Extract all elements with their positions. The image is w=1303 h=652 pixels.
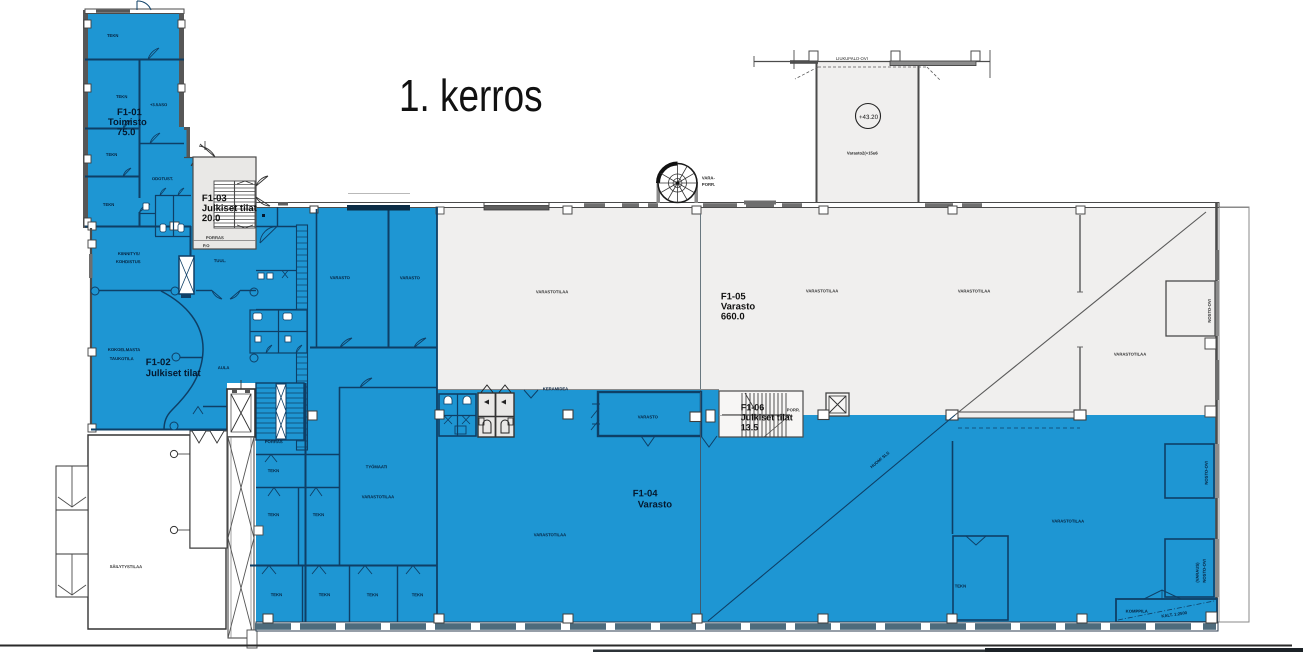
- svg-text:F1-04: F1-04: [633, 488, 659, 499]
- svg-text:LIUKUPALO-OVI: LIUKUPALO-OVI: [836, 56, 868, 61]
- svg-text:TEKN: TEKN: [268, 468, 279, 473]
- svg-text:VARASTO: VARASTO: [400, 275, 421, 280]
- svg-text:F1-02: F1-02: [146, 357, 171, 368]
- svg-text:+3.5ASO: +3.5ASO: [150, 102, 168, 107]
- svg-text:VARASTOTILAA: VARASTOTILAA: [536, 289, 568, 294]
- svg-text:VARASTOTILAA: VARASTOTILAA: [1052, 519, 1084, 524]
- svg-text:TEKN: TEKN: [103, 202, 114, 207]
- svg-text:(VARAUS): (VARAUS): [1195, 562, 1200, 583]
- svg-text:PORR.: PORR.: [702, 182, 715, 187]
- svg-text:P.O: P.O: [203, 243, 210, 248]
- svg-text:TEKN: TEKN: [268, 512, 279, 517]
- svg-text:Varasto2(+15u6: Varasto2(+15u6: [847, 150, 879, 155]
- svg-text:TEKN: TEKN: [116, 94, 127, 99]
- svg-text:KOMPPILA: KOMPPILA: [1126, 609, 1148, 614]
- svg-text:TEKN: TEKN: [412, 592, 423, 597]
- svg-text:13.5: 13.5: [741, 422, 759, 432]
- svg-text:TEKN: TEKN: [367, 592, 378, 597]
- svg-text:KERAMIDEA: KERAMIDEA: [543, 386, 568, 391]
- svg-text:TEKN: TEKN: [106, 152, 117, 157]
- svg-text:VARASTOTILAA: VARASTOTILAA: [1114, 352, 1146, 357]
- svg-text:660.0: 660.0: [721, 311, 745, 322]
- svg-text:F1-06: F1-06: [741, 402, 765, 412]
- svg-text:75.0: 75.0: [117, 127, 136, 138]
- svg-text:NOSTO-OVI: NOSTO-OVI: [1207, 299, 1212, 322]
- svg-text:NOSTO-OVI: NOSTO-OVI: [1204, 461, 1209, 484]
- svg-text:1. kerros: 1. kerros: [399, 70, 543, 121]
- svg-text:KOKOELMASTA: KOKOELMASTA: [108, 347, 141, 352]
- svg-text:TUUL.: TUUL.: [214, 258, 226, 263]
- svg-text:TAUKOTILA: TAUKOTILA: [110, 356, 134, 361]
- svg-text:VARASTOTILAA: VARASTOTILAA: [958, 289, 990, 294]
- svg-text:Julkiset tilat: Julkiset tilat: [741, 412, 793, 422]
- svg-text:VARASTOTILAA: VARASTOTILAA: [362, 494, 394, 499]
- svg-text:VARASTOTILAA: VARASTOTILAA: [534, 532, 566, 537]
- svg-text:KOHDISTUS: KOHDISTUS: [116, 259, 141, 264]
- svg-text:KIINNITYS/: KIINNITYS/: [118, 251, 141, 256]
- svg-text:TEKN: TEKN: [271, 592, 282, 597]
- svg-text:PORRAS: PORRAS: [265, 439, 283, 444]
- svg-text:PORRAS: PORRAS: [206, 235, 224, 240]
- svg-text:TEKN: TEKN: [313, 512, 324, 517]
- svg-text:NOSTO-OVI: NOSTO-OVI: [1202, 559, 1207, 582]
- svg-text:AULA: AULA: [218, 365, 230, 370]
- svg-text:VARASTO: VARASTO: [330, 275, 351, 280]
- svg-text:Julkiset tilat: Julkiset tilat: [146, 368, 202, 379]
- svg-text:Varasto: Varasto: [638, 499, 673, 510]
- svg-text:VARASTO: VARASTO: [638, 414, 659, 419]
- svg-text:VARASTOTILAA: VARASTOTILAA: [806, 288, 838, 293]
- svg-text:TEKN: TEKN: [955, 583, 966, 588]
- svg-text:20.0: 20.0: [202, 213, 221, 224]
- svg-text:VARA-: VARA-: [702, 175, 716, 180]
- svg-text:TYÖMAATI: TYÖMAATI: [366, 464, 388, 469]
- svg-text:+43.20: +43.20: [859, 114, 879, 121]
- svg-text:TEKN: TEKN: [319, 592, 330, 597]
- svg-text:TEKN: TEKN: [107, 33, 118, 38]
- svg-text:ODOTUST.: ODOTUST.: [152, 176, 173, 181]
- svg-text:PORR.: PORR.: [787, 407, 800, 412]
- svg-text:SÄILYTYSTILAA: SÄILYTYSTILAA: [110, 564, 142, 569]
